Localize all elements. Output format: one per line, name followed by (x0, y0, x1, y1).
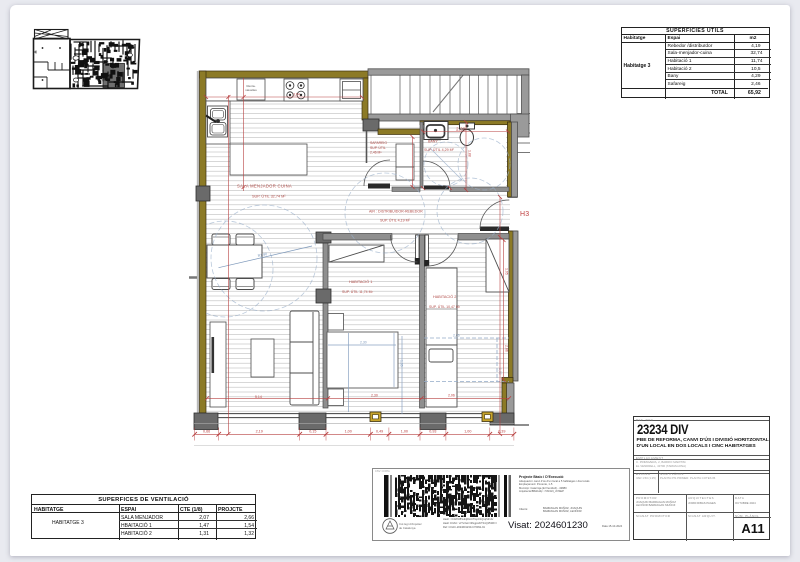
svg-text:3,64: 3,64 (293, 93, 300, 97)
svg-text:SUP. ÚTIL 32,74 M²: SUP. ÚTIL 32,74 M² (252, 194, 286, 199)
svg-text:2,06: 2,06 (448, 394, 455, 398)
svg-text:SUP. ÚTIL: SUP. ÚTIL (370, 145, 386, 150)
svg-text:1,35: 1,35 (400, 360, 404, 367)
svg-text:2,32: 2,32 (456, 127, 466, 133)
svg-text:SUP. ÚTIL 11,74 M²: SUP. ÚTIL 11,74 M² (342, 290, 374, 294)
svg-text:1,00: 1,00 (345, 430, 352, 434)
svg-text:2,19: 2,19 (256, 430, 263, 434)
svg-text:SUP. ÚTIL 10,47 M²: SUP. ÚTIL 10,47 M² (429, 305, 461, 309)
svg-text:2,46 M²: 2,46 M² (370, 151, 382, 155)
svg-text:SALA MENJADOR CUINA: SALA MENJADOR CUINA (237, 184, 292, 189)
svg-text:2,06: 2,06 (453, 334, 460, 338)
svg-text:0,93: 0,93 (429, 430, 436, 434)
svg-text:BANY: BANY (428, 140, 438, 144)
svg-text:2,30: 2,30 (371, 394, 378, 398)
svg-text:2,06: 2,06 (505, 345, 509, 352)
svg-text:vaixelles: vaixelles (245, 88, 257, 92)
svg-text:SAFAREIG: SAFAREIG (370, 141, 387, 145)
svg-text:1,95: 1,95 (505, 268, 509, 275)
svg-text:H3: H3 (520, 211, 529, 218)
svg-text:de Catalunya: de Catalunya (399, 526, 416, 530)
svg-text:0,15: 0,15 (309, 430, 316, 434)
svg-text:1,00: 1,00 (464, 430, 471, 434)
svg-text:SUP. ÚTIL 4,19 M²: SUP. ÚTIL 4,19 M² (380, 218, 411, 223)
svg-text:1,00: 1,00 (401, 430, 408, 434)
svg-text:0,49: 0,49 (376, 430, 383, 434)
svg-text:2,30: 2,30 (360, 341, 367, 345)
svg-text:HABITACIÓ 2: HABITACIÓ 2 (433, 294, 456, 299)
svg-text:5,14: 5,14 (255, 395, 262, 399)
svg-text:AIR : DISTRIBUIDOR-REBEDOR: AIR : DISTRIBUIDOR-REBEDOR (369, 210, 423, 214)
svg-text:SUP. ÚTIL 4,29 M²: SUP. ÚTIL 4,29 M² (424, 147, 455, 152)
svg-text:1,88: 1,88 (468, 150, 472, 157)
svg-text:HABITACIÓ 1: HABITACIÓ 1 (349, 279, 372, 284)
svg-text:0,66: 0,66 (203, 430, 210, 434)
